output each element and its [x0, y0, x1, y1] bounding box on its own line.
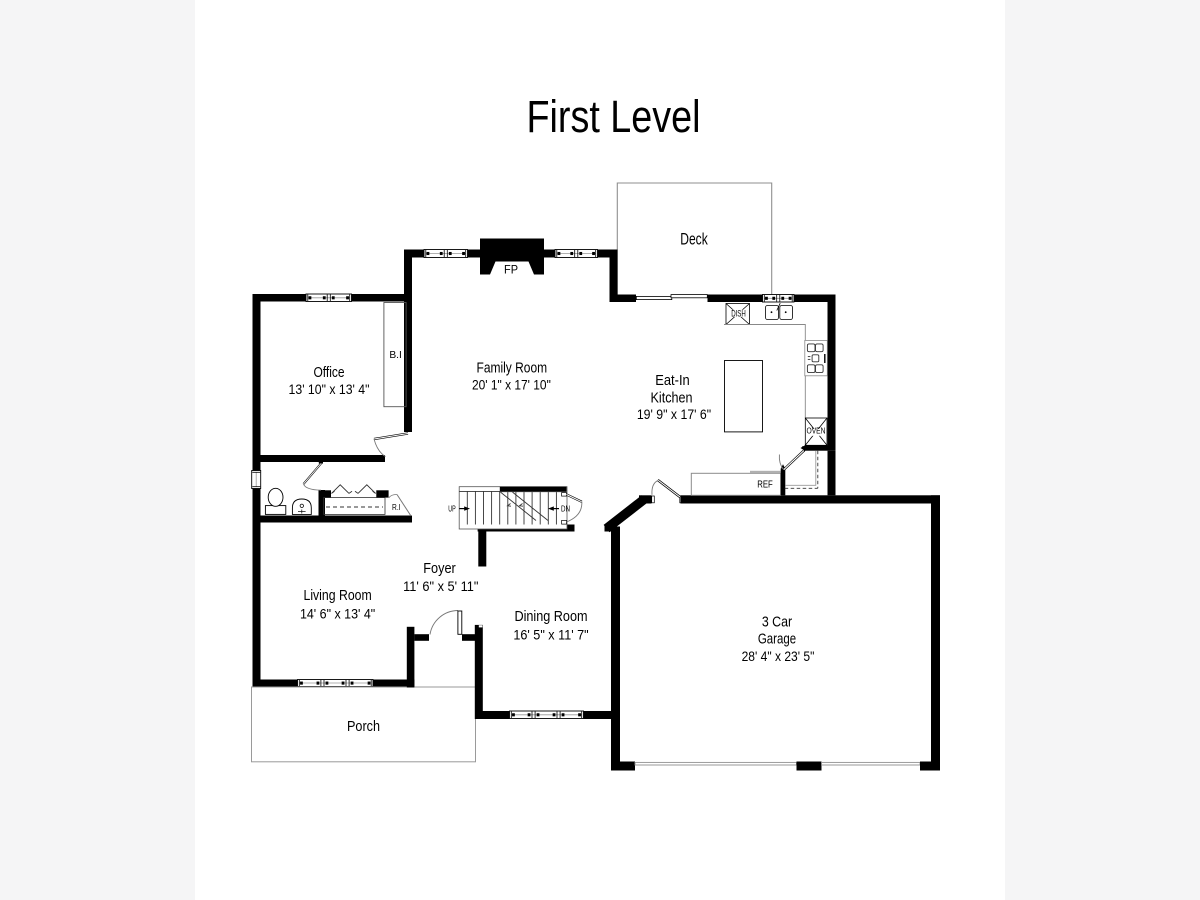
svg-text:UP: UP: [448, 504, 456, 514]
svg-text:REF: REF: [757, 478, 773, 490]
svg-text:Kitchen: Kitchen: [651, 390, 693, 407]
svg-text:Deck: Deck: [680, 231, 708, 249]
svg-text:Living Room: Living Room: [304, 587, 372, 604]
svg-text:19' 9" x 17' 6": 19' 9" x 17' 6": [637, 407, 711, 422]
svg-text:16' 5" x 11' 7": 16' 5" x 11' 7": [513, 628, 588, 643]
svg-text:Office: Office: [313, 364, 344, 381]
svg-text:11' 6" x 5' 11": 11' 6" x 5' 11": [403, 579, 478, 594]
svg-text:Porch: Porch: [347, 718, 380, 735]
svg-text:B.I: B.I: [389, 349, 402, 361]
svg-text:3 Car: 3 Car: [762, 614, 792, 631]
svg-text:Eat-In: Eat-In: [655, 372, 690, 389]
svg-text:DN: DN: [561, 504, 570, 514]
svg-text:Dining Room: Dining Room: [514, 608, 587, 625]
svg-text:FP: FP: [504, 264, 518, 276]
svg-text:First Level: First Level: [527, 91, 701, 142]
svg-text:OVEN: OVEN: [807, 427, 826, 436]
svg-text:20' 1" x 17' 10": 20' 1" x 17' 10": [472, 377, 551, 392]
svg-text:14' 6" x 13' 4": 14' 6" x 13' 4": [300, 606, 375, 621]
svg-text:DISH: DISH: [731, 309, 746, 320]
svg-text:R.I: R.I: [392, 503, 401, 512]
svg-text:28' 4" x 23' 5": 28' 4" x 23' 5": [742, 649, 815, 664]
svg-text:13' 10" x 13' 4": 13' 10" x 13' 4": [289, 382, 370, 397]
svg-text:Family Room: Family Room: [477, 359, 548, 376]
svg-text:Foyer: Foyer: [423, 560, 456, 577]
svg-text:Garage: Garage: [758, 630, 796, 647]
